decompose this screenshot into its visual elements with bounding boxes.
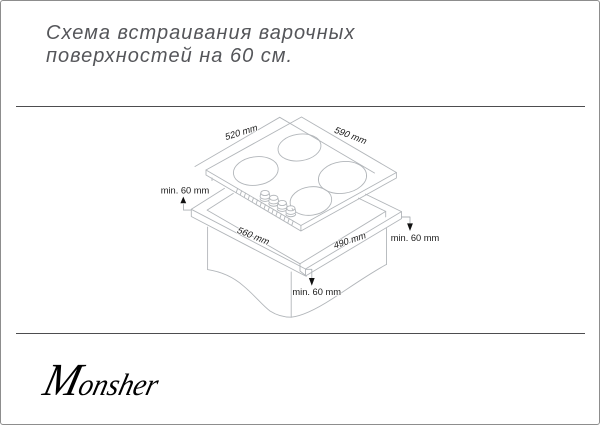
svg-text:min. 60 mm: min. 60 mm — [391, 233, 440, 243]
svg-text:560 mm: 560 mm — [235, 225, 272, 247]
svg-text:min. 60 mm: min. 60 mm — [161, 186, 210, 196]
svg-text:min. 60 mm: min. 60 mm — [292, 287, 341, 297]
svg-text:590 mm: 590 mm — [332, 125, 370, 146]
svg-text:490 mm: 490 mm — [333, 229, 366, 251]
